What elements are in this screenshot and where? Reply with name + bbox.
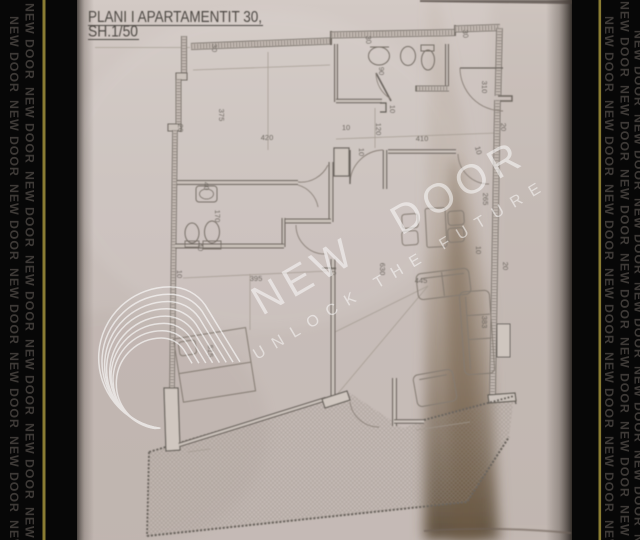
svg-text:40: 40 bbox=[202, 182, 211, 190]
svg-text:310: 310 bbox=[480, 81, 489, 94]
svg-text:120: 120 bbox=[374, 123, 383, 136]
svg-text:410: 410 bbox=[416, 134, 429, 143]
svg-text:NEW DOOR: NEW DOOR bbox=[602, 436, 616, 513]
svg-text:20: 20 bbox=[499, 123, 508, 131]
svg-text:383: 383 bbox=[480, 316, 489, 329]
svg-text:90: 90 bbox=[377, 67, 386, 75]
svg-text:NEW DOOR: NEW DOOR bbox=[7, 100, 21, 177]
svg-text:NEW DOOR: NEW DOOR bbox=[7, 436, 21, 513]
svg-text:NEW DOOR: NEW DOOR bbox=[23, 423, 37, 500]
svg-text:170: 170 bbox=[213, 210, 222, 223]
svg-text:SH.1/50: SH.1/50 bbox=[88, 24, 138, 41]
svg-text:10: 10 bbox=[357, 148, 366, 156]
svg-text:NEW DOOR: NEW DOOR bbox=[7, 184, 21, 261]
svg-text:NEW DOOR: NEW DOOR bbox=[618, 505, 632, 540]
svg-text:NEW DOOR: NEW DOOR bbox=[7, 520, 21, 540]
svg-text:NEW DOOR: NEW DOOR bbox=[7, 352, 21, 429]
svg-text:420: 420 bbox=[261, 133, 274, 142]
svg-text:10: 10 bbox=[474, 246, 483, 254]
svg-text:40: 40 bbox=[196, 243, 205, 251]
svg-text:NEW DOOR: NEW DOOR bbox=[632, 366, 640, 443]
svg-text:NEW DOOR: NEW DOOR bbox=[7, 16, 21, 93]
svg-text:30: 30 bbox=[364, 35, 374, 44]
svg-text:NEW DOOR: NEW DOOR bbox=[23, 255, 37, 332]
svg-text:NEW DOOR: NEW DOOR bbox=[23, 3, 37, 80]
svg-text:10: 10 bbox=[342, 123, 350, 132]
svg-text:NEW DOOR: NEW DOOR bbox=[23, 171, 37, 248]
svg-text:NEW DOOR: NEW DOOR bbox=[618, 169, 632, 246]
svg-text:NEW DOOR: NEW DOOR bbox=[632, 282, 640, 359]
svg-text:30: 30 bbox=[461, 29, 471, 38]
svg-text:NEW DOOR: NEW DOOR bbox=[602, 268, 616, 345]
svg-text:NEW DOOR: NEW DOOR bbox=[7, 268, 21, 345]
svg-text:NEW DOOR: NEW DOOR bbox=[632, 114, 640, 191]
svg-text:NEW DOOR: NEW DOOR bbox=[632, 198, 640, 275]
svg-text:NEW DOOR: NEW DOOR bbox=[618, 253, 632, 330]
svg-text:375: 375 bbox=[217, 109, 226, 122]
svg-text:445: 445 bbox=[415, 276, 428, 285]
svg-text:NEW DOOR: NEW DOOR bbox=[632, 30, 640, 107]
svg-text:NEW DOOR: NEW DOOR bbox=[23, 87, 37, 164]
svg-text:NEW DOOR: NEW DOOR bbox=[632, 534, 640, 540]
svg-text:NEW DOOR: NEW DOOR bbox=[602, 100, 616, 177]
svg-text:NEW DOOR: NEW DOOR bbox=[602, 184, 616, 261]
svg-text:NEW DOOR: NEW DOOR bbox=[618, 337, 632, 414]
svg-text:10: 10 bbox=[175, 270, 184, 278]
svg-text:NEW DOOR: NEW DOOR bbox=[618, 421, 632, 498]
svg-text:NEW DOOR: NEW DOOR bbox=[602, 16, 616, 93]
svg-text:NEW DOOR: NEW DOOR bbox=[618, 85, 632, 162]
svg-text:NEW DOOR: NEW DOOR bbox=[23, 507, 37, 540]
svg-text:NEW DOOR: NEW DOOR bbox=[618, 1, 632, 78]
svg-text:NEW DOOR: NEW DOOR bbox=[632, 450, 640, 527]
svg-text:NEW DOOR: NEW DOOR bbox=[602, 520, 616, 540]
svg-text:10: 10 bbox=[388, 105, 397, 113]
svg-text:NEW DOOR: NEW DOOR bbox=[602, 352, 616, 429]
svg-text:NEW DOOR: NEW DOOR bbox=[23, 339, 37, 416]
svg-text:20: 20 bbox=[176, 124, 185, 132]
svg-text:20: 20 bbox=[501, 262, 510, 270]
svg-text:30: 30 bbox=[210, 44, 219, 52]
